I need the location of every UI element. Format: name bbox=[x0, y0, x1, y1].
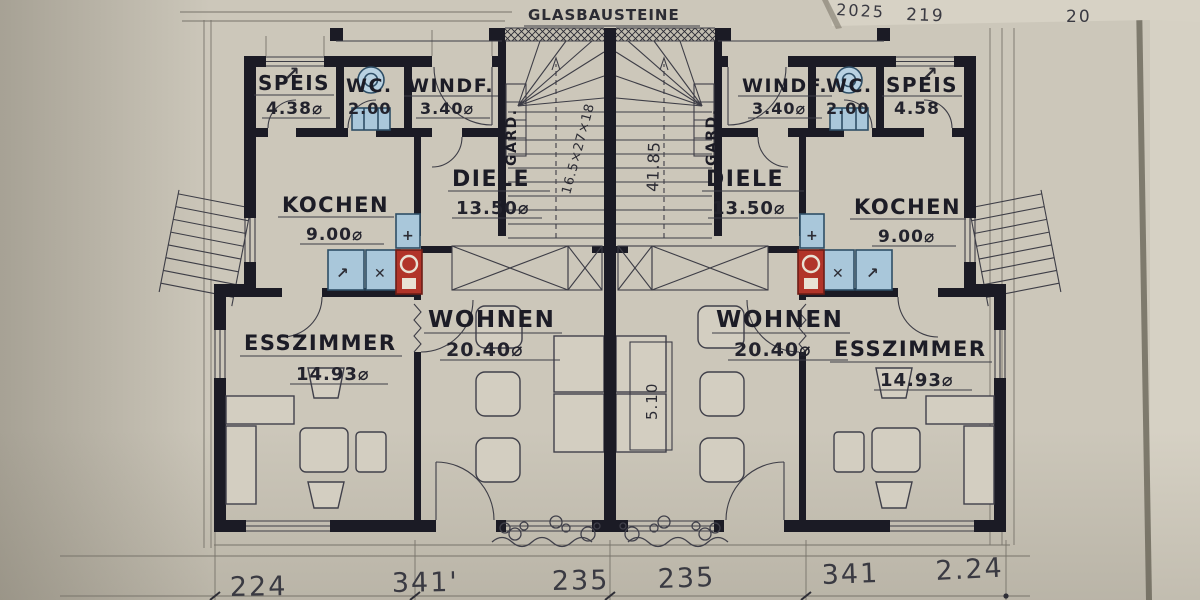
kitchen-arrow-icon-right: ↗ bbox=[866, 264, 880, 282]
room-label-kueche-right: KOCHEN bbox=[854, 195, 961, 219]
speis-arrow-icon-left: ↗ bbox=[284, 63, 301, 85]
room-label-wc-right: WC. bbox=[826, 75, 873, 97]
room-label-esszimmer-left: ESSZIMMER bbox=[244, 331, 397, 355]
room-label-diele-left: DIELE bbox=[452, 167, 530, 192]
room-area-kueche-right: 9.00⌀ bbox=[878, 227, 935, 247]
room-area-speis-left: 4.38⌀ bbox=[266, 99, 323, 119]
room-area-wc-left: 2.00 bbox=[348, 99, 391, 118]
room-area-speis-right: 4.58 bbox=[894, 99, 940, 119]
room-label-windf-left: WINDF. bbox=[408, 75, 494, 97]
center-width-dimension: 5.10 bbox=[643, 383, 661, 420]
glass-block-label: GLASBAUSTEINE bbox=[528, 6, 680, 24]
dimension-224-left: 224 bbox=[230, 571, 288, 600]
dimension-341-right: 341 bbox=[821, 558, 880, 591]
room-area-diele-right: 13.50⌀ bbox=[712, 198, 786, 219]
room-area-windf-left: 3.40⌀ bbox=[420, 99, 474, 118]
paper-background bbox=[0, 0, 1200, 600]
dimension-224-right: 2.24 bbox=[935, 552, 1005, 587]
sheet-number-3: 20 bbox=[1066, 7, 1092, 27]
room-label-kueche-left: KOCHEN bbox=[282, 193, 389, 217]
dimension-341-left: 341' bbox=[392, 567, 459, 599]
room-label-diele-right: DIELE bbox=[706, 167, 784, 192]
room-label-wohnen-right: WOHNEN bbox=[716, 307, 843, 333]
room-area-kueche-left: 9.00⌀ bbox=[306, 225, 363, 245]
room-label-wohnen-left: WOHNEN bbox=[428, 307, 555, 333]
dimension-235-left: 235 bbox=[552, 565, 610, 597]
stair-length-dimension: 41.85 bbox=[643, 141, 664, 192]
room-label-wc-left: WC. bbox=[346, 75, 393, 97]
kitchen-plus-icon-right: + bbox=[806, 228, 819, 244]
kitchen-arrow-icon-left: ↗ bbox=[336, 264, 350, 282]
room-area-wohnen-left: 20.40⌀ bbox=[446, 339, 524, 361]
dimension-235-right: 235 bbox=[657, 562, 716, 595]
room-label-gard-left: GARD. bbox=[504, 108, 520, 166]
room-area-diele-left: 13.50⌀ bbox=[456, 198, 530, 219]
speis-arrow-icon-right: ↗ bbox=[922, 63, 939, 85]
sheet-number-2: 219 bbox=[906, 5, 945, 26]
room-area-wohnen-right: 20.40⌀ bbox=[734, 339, 812, 361]
room-area-esszimmer-right: 14.93⌀ bbox=[880, 370, 954, 391]
kitchen-cross-icon-right: ✕ bbox=[832, 266, 845, 282]
floor-plan-photo: GLASBAUSTEINE 2025 219 20 SPEIS 4.38⌀ WC… bbox=[0, 0, 1200, 600]
room-label-gard-right: GARD. bbox=[704, 108, 720, 166]
room-area-windf-right: 3.40⌀ bbox=[752, 99, 806, 118]
room-label-windf-right: WINDF. bbox=[742, 75, 828, 97]
kitchen-plus-icon-left: + bbox=[402, 228, 415, 244]
sheet-number-1: 2025 bbox=[836, 0, 886, 22]
kitchen-cross-icon-left: ✕ bbox=[374, 266, 387, 282]
party-wall bbox=[604, 28, 616, 532]
room-area-wc-right: 2.00 bbox=[826, 99, 869, 118]
room-area-esszimmer-left: 14.93⌀ bbox=[296, 364, 370, 385]
room-label-esszimmer-right: ESSZIMMER bbox=[834, 337, 987, 361]
